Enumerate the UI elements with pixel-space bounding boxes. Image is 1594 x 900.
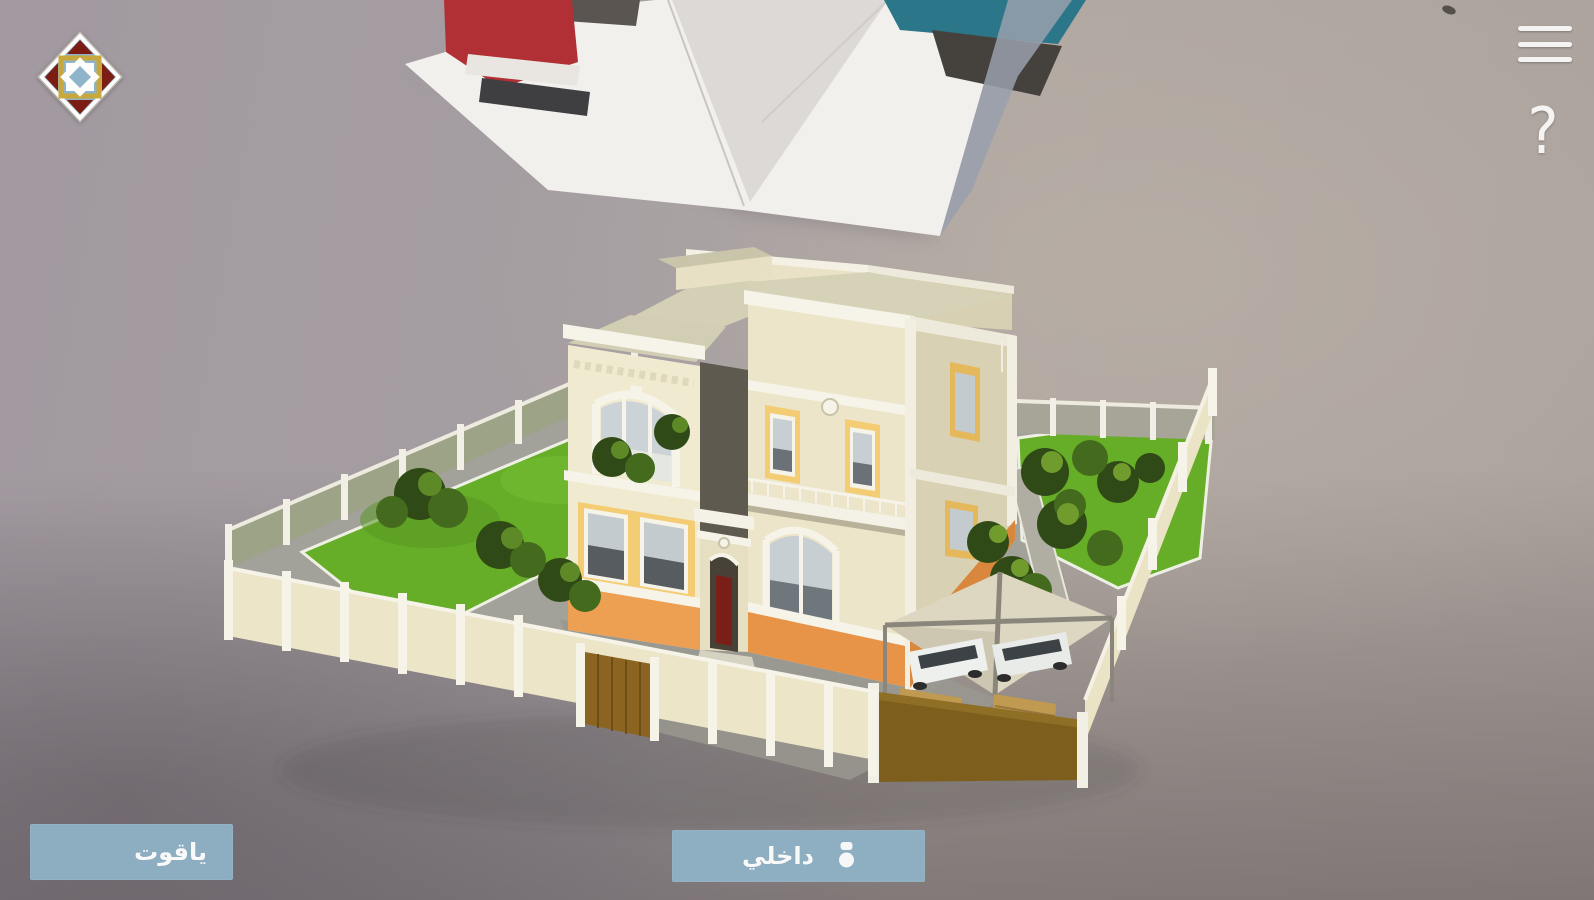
model-name-button[interactable]: ياقوت	[30, 824, 233, 880]
geometric-tile-logo-icon	[36, 30, 124, 124]
villa-3d-model[interactable]	[224, 247, 1217, 828]
interior-label: داخلي	[742, 842, 814, 870]
wall-shelf	[405, 0, 1457, 242]
model-name-label: ياقوت	[134, 838, 207, 866]
hamburger-menu-icon	[1518, 26, 1572, 31]
entrance-bay	[694, 362, 756, 672]
question-mark-icon: ?	[1527, 95, 1558, 169]
upper-window	[845, 419, 880, 498]
side-window-glass	[955, 372, 975, 434]
wall-speck	[1441, 4, 1457, 16]
upper-window	[765, 405, 800, 484]
ar-app-screen: ? ياقوت داخلي	[0, 0, 1594, 900]
app-logo	[36, 30, 124, 124]
menu-button[interactable]	[1518, 26, 1572, 62]
help-button[interactable]: ?	[1527, 100, 1558, 164]
person-pin-icon	[838, 842, 855, 870]
camera-view	[0, 0, 1594, 900]
hamburger-menu-icon	[1518, 42, 1572, 47]
entrance-door	[710, 555, 738, 652]
garden-gate	[585, 652, 652, 738]
hamburger-menu-icon	[1518, 57, 1572, 62]
red-door	[716, 575, 732, 646]
interior-view-button[interactable]: داخلي	[672, 830, 925, 882]
